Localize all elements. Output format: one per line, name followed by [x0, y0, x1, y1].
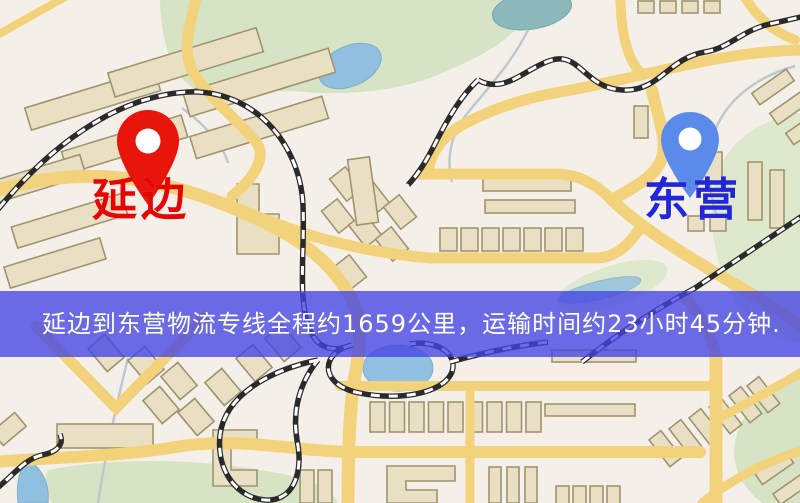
map-screenshot: 延边 东营 延边到东营物流专线全程约1659公里，运输时间约23小时45分钟.: [0, 0, 800, 503]
map-background: [0, 0, 800, 503]
route-info-banner: 延边到东营物流专线全程约1659公里，运输时间约23小时45分钟.: [0, 291, 800, 357]
destination-city-label: 东营: [644, 177, 742, 222]
route-info-text: 延边到东营物流专线全程约1659公里，运输时间约23小时45分钟.: [42, 304, 781, 339]
origin-city-label: 延边: [92, 177, 190, 222]
